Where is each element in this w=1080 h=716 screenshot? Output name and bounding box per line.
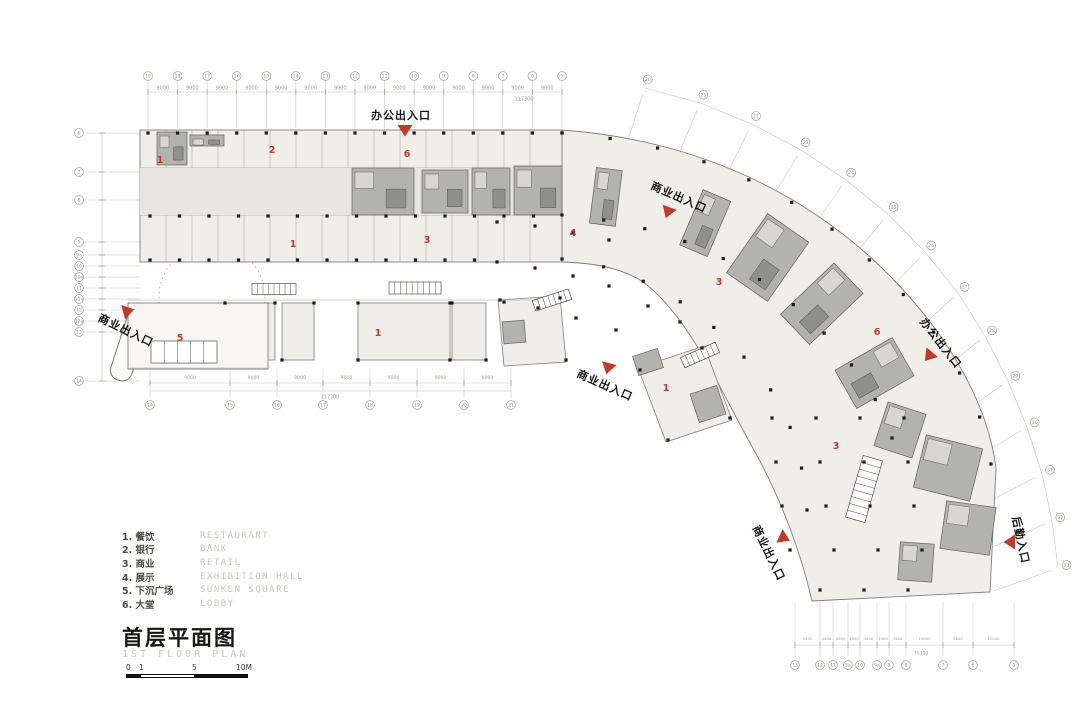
svg-text:15: 15 bbox=[227, 403, 233, 409]
svg-text:9000: 9000 bbox=[186, 86, 199, 92]
svg-text:12: 12 bbox=[352, 74, 358, 80]
island-pavilion bbox=[282, 303, 314, 360]
svg-text:3400: 3400 bbox=[803, 636, 813, 641]
svg-text:9000: 9000 bbox=[435, 375, 447, 381]
svg-text:10: 10 bbox=[857, 663, 863, 669]
legend-item: 1. 餐饮RESTAURANT bbox=[122, 529, 304, 543]
svg-text:26: 26 bbox=[928, 243, 934, 249]
svg-text:13: 13 bbox=[76, 330, 82, 336]
svg-text:12a: 12a bbox=[75, 319, 84, 325]
area-number: 3 bbox=[424, 235, 431, 246]
svg-text:9: 9 bbox=[888, 663, 891, 669]
svg-text:11: 11 bbox=[830, 663, 836, 669]
svg-text:3400: 3400 bbox=[864, 636, 874, 641]
legend-item: 6. 大堂LOBBY bbox=[122, 597, 304, 611]
svg-text:9000: 9000 bbox=[304, 86, 317, 92]
svg-text:19: 19 bbox=[414, 403, 420, 409]
island-pavilion bbox=[452, 303, 486, 360]
svg-text:9000: 9000 bbox=[388, 375, 400, 381]
svg-text:16: 16 bbox=[234, 74, 240, 80]
curved-wing bbox=[562, 130, 996, 601]
svg-text:20: 20 bbox=[645, 77, 651, 83]
svg-text:13: 13 bbox=[792, 663, 798, 669]
floor-plan-page: 1990001890001790001690001590001490001390… bbox=[0, 0, 1080, 716]
service-core bbox=[502, 320, 526, 344]
svg-text:9000: 9000 bbox=[275, 86, 288, 92]
svg-text:11a: 11a bbox=[75, 297, 84, 303]
svg-text:5: 5 bbox=[1013, 663, 1016, 669]
svg-text:23: 23 bbox=[803, 140, 809, 146]
svg-text:31: 31 bbox=[1047, 467, 1053, 473]
svg-text:9000: 9000 bbox=[541, 86, 554, 92]
svg-text:6: 6 bbox=[531, 74, 534, 80]
svg-text:9000: 9000 bbox=[245, 86, 258, 92]
area-number: 6 bbox=[874, 327, 881, 338]
svg-text:117300: 117300 bbox=[321, 395, 339, 401]
scale-bar-ruler bbox=[126, 674, 248, 678]
area-number: 1 bbox=[375, 328, 382, 339]
area-number: 6 bbox=[404, 149, 411, 160]
area-number: 1 bbox=[290, 239, 297, 250]
svg-text:9000: 9000 bbox=[294, 375, 306, 381]
svg-text:9000: 9000 bbox=[452, 86, 465, 92]
svg-text:16: 16 bbox=[274, 403, 280, 409]
legend-item: 3. 商业RETAIL bbox=[122, 556, 304, 570]
svg-text:8: 8 bbox=[472, 74, 475, 80]
service-core bbox=[898, 542, 935, 582]
svg-text:28: 28 bbox=[989, 328, 995, 334]
svg-text:30: 30 bbox=[1032, 420, 1038, 426]
svg-text:9000: 9000 bbox=[482, 86, 495, 92]
area-number: 3 bbox=[833, 441, 840, 452]
svg-text:12: 12 bbox=[76, 308, 82, 314]
svg-text:9a: 9a bbox=[874, 663, 880, 669]
area-number: 4 bbox=[570, 228, 577, 239]
svg-text:9000: 9000 bbox=[363, 86, 376, 92]
svg-text:9000: 9000 bbox=[216, 86, 229, 92]
svg-text:4500: 4500 bbox=[849, 636, 859, 641]
svg-text:10: 10 bbox=[411, 74, 417, 80]
stair-escalator bbox=[252, 284, 296, 295]
area-number: 1 bbox=[157, 155, 164, 166]
page-subtitle: 1ST FLOOR PLAN bbox=[122, 649, 248, 660]
svg-text:4500: 4500 bbox=[836, 636, 846, 641]
svg-text:24: 24 bbox=[848, 170, 854, 176]
island-pavilion bbox=[358, 303, 450, 360]
legend-item: 5. 下沉广场SUNKEN SQUARE bbox=[122, 583, 304, 597]
area-number: 2 bbox=[269, 145, 276, 156]
service-core bbox=[940, 501, 996, 555]
svg-text:9000: 9000 bbox=[341, 375, 353, 381]
stair-escalator bbox=[151, 341, 217, 363]
svg-text:17: 17 bbox=[320, 403, 326, 409]
svg-text:25: 25 bbox=[891, 205, 897, 211]
svg-text:3600: 3600 bbox=[953, 636, 963, 641]
svg-text:9: 9 bbox=[442, 74, 445, 80]
svg-text:19: 19 bbox=[145, 74, 151, 80]
svg-text:8: 8 bbox=[905, 663, 908, 669]
page-title: 首层平面图 bbox=[122, 622, 237, 652]
svg-text:21: 21 bbox=[701, 92, 707, 98]
svg-text:14: 14 bbox=[76, 379, 82, 385]
svg-text:22: 22 bbox=[753, 114, 759, 120]
stair-escalator bbox=[389, 282, 441, 294]
svg-text:9000: 9000 bbox=[423, 86, 436, 92]
svg-text:9000: 9000 bbox=[156, 86, 169, 92]
svg-text:75300: 75300 bbox=[914, 651, 929, 657]
svg-text:11: 11 bbox=[382, 74, 388, 80]
area-number: 1 bbox=[663, 383, 670, 394]
svg-text:18: 18 bbox=[175, 74, 181, 80]
svg-text:13000: 13000 bbox=[918, 636, 931, 641]
area-number: 5 bbox=[177, 333, 184, 344]
svg-text:12: 12 bbox=[817, 663, 823, 669]
svg-text:7: 7 bbox=[501, 74, 504, 80]
svg-text:7: 7 bbox=[78, 170, 81, 176]
svg-text:6: 6 bbox=[78, 131, 81, 137]
svg-text:9000: 9000 bbox=[184, 375, 196, 381]
svg-text:9000: 9000 bbox=[248, 375, 260, 381]
svg-text:5: 5 bbox=[561, 74, 564, 80]
svg-text:14: 14 bbox=[293, 74, 299, 80]
svg-text:9: 9 bbox=[78, 240, 81, 246]
scale-bar: 0 1 5 10M bbox=[126, 663, 266, 683]
svg-text:6: 6 bbox=[972, 663, 975, 669]
svg-text:9000: 9000 bbox=[334, 86, 347, 92]
svg-text:3400: 3400 bbox=[893, 636, 903, 641]
svg-text:9000: 9000 bbox=[482, 375, 494, 381]
svg-text:4500: 4500 bbox=[822, 636, 832, 641]
svg-text:29: 29 bbox=[1012, 373, 1018, 379]
svg-text:9000: 9000 bbox=[393, 86, 406, 92]
svg-text:27: 27 bbox=[962, 284, 968, 290]
svg-text:9a: 9a bbox=[76, 253, 82, 259]
entrance-label-office-top: 办公出入口 bbox=[371, 107, 431, 123]
svg-text:14: 14 bbox=[147, 403, 153, 409]
svg-text:33: 33 bbox=[1064, 563, 1070, 569]
svg-text:20: 20 bbox=[461, 403, 467, 409]
legend: 1. 餐饮RESTAURANT 2. 银行BANK 3. 商业RETAIL 4.… bbox=[122, 529, 304, 611]
svg-text:13: 13 bbox=[322, 74, 328, 80]
entrance-arrow-icon bbox=[776, 529, 793, 547]
svg-text:9000: 9000 bbox=[511, 86, 524, 92]
legend-item: 4. 展示EXHIBITION HALL bbox=[122, 570, 304, 584]
svg-text:17: 17 bbox=[204, 74, 210, 80]
svg-text:11: 11 bbox=[76, 286, 82, 292]
svg-text:117300: 117300 bbox=[514, 97, 533, 103]
svg-text:8: 8 bbox=[78, 198, 81, 204]
svg-text:5400: 5400 bbox=[878, 636, 888, 641]
svg-text:15: 15 bbox=[263, 74, 269, 80]
svg-text:12000: 12000 bbox=[987, 636, 1000, 641]
svg-text:18: 18 bbox=[367, 403, 373, 409]
svg-text:10: 10 bbox=[76, 264, 82, 270]
svg-text:21: 21 bbox=[508, 403, 514, 409]
svg-text:32: 32 bbox=[1057, 515, 1063, 521]
area-number: 3 bbox=[716, 277, 723, 288]
legend-item: 2. 银行BANK bbox=[122, 543, 304, 557]
svg-text:7: 7 bbox=[942, 663, 945, 669]
svg-text:10a: 10a bbox=[75, 275, 84, 281]
svg-text:5a: 5a bbox=[845, 663, 851, 669]
